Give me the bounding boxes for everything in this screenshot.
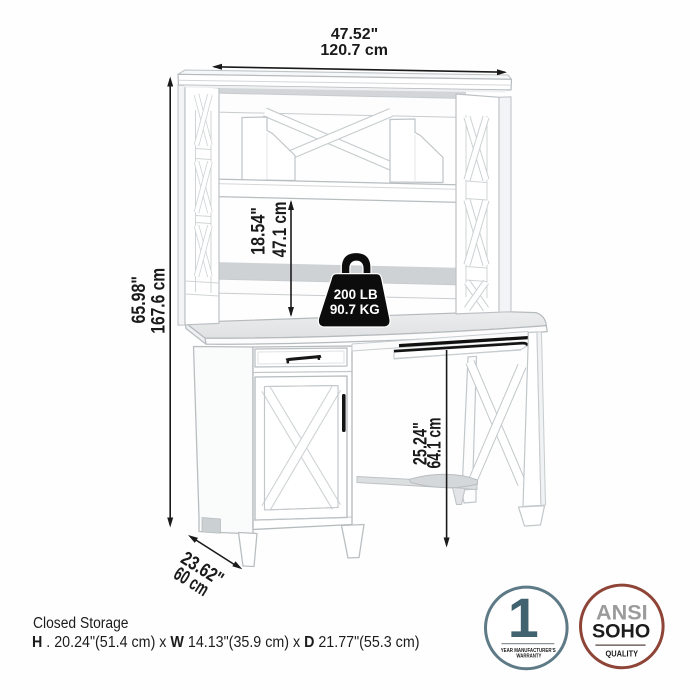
svg-text:64.1 cm: 64.1 cm [424,418,446,469]
svg-text:QUALITY: QUALITY [606,649,639,659]
svg-text:WARRANTY: WARRANTY [516,654,541,660]
svg-text:90.7 KG: 90.7 KG [330,302,380,317]
svg-text:47.52": 47.52" [331,26,378,43]
svg-text:200 LB: 200 LB [334,287,378,302]
svg-text:120.7 cm: 120.7 cm [320,42,388,59]
svg-text:Closed Storage: Closed Storage [33,615,129,632]
svg-text:SOHO: SOHO [592,621,650,643]
svg-text:18.54": 18.54" [248,207,270,255]
svg-text:47.1 cm: 47.1 cm [269,202,291,258]
svg-text:1: 1 [508,587,539,649]
svg-text:H . 20.24"(51.4 cm) x W 14.13": H . 20.24"(51.4 cm) x W 14.13"(35.9 cm) … [32,634,420,651]
svg-text:167.6 cm: 167.6 cm [148,268,170,334]
